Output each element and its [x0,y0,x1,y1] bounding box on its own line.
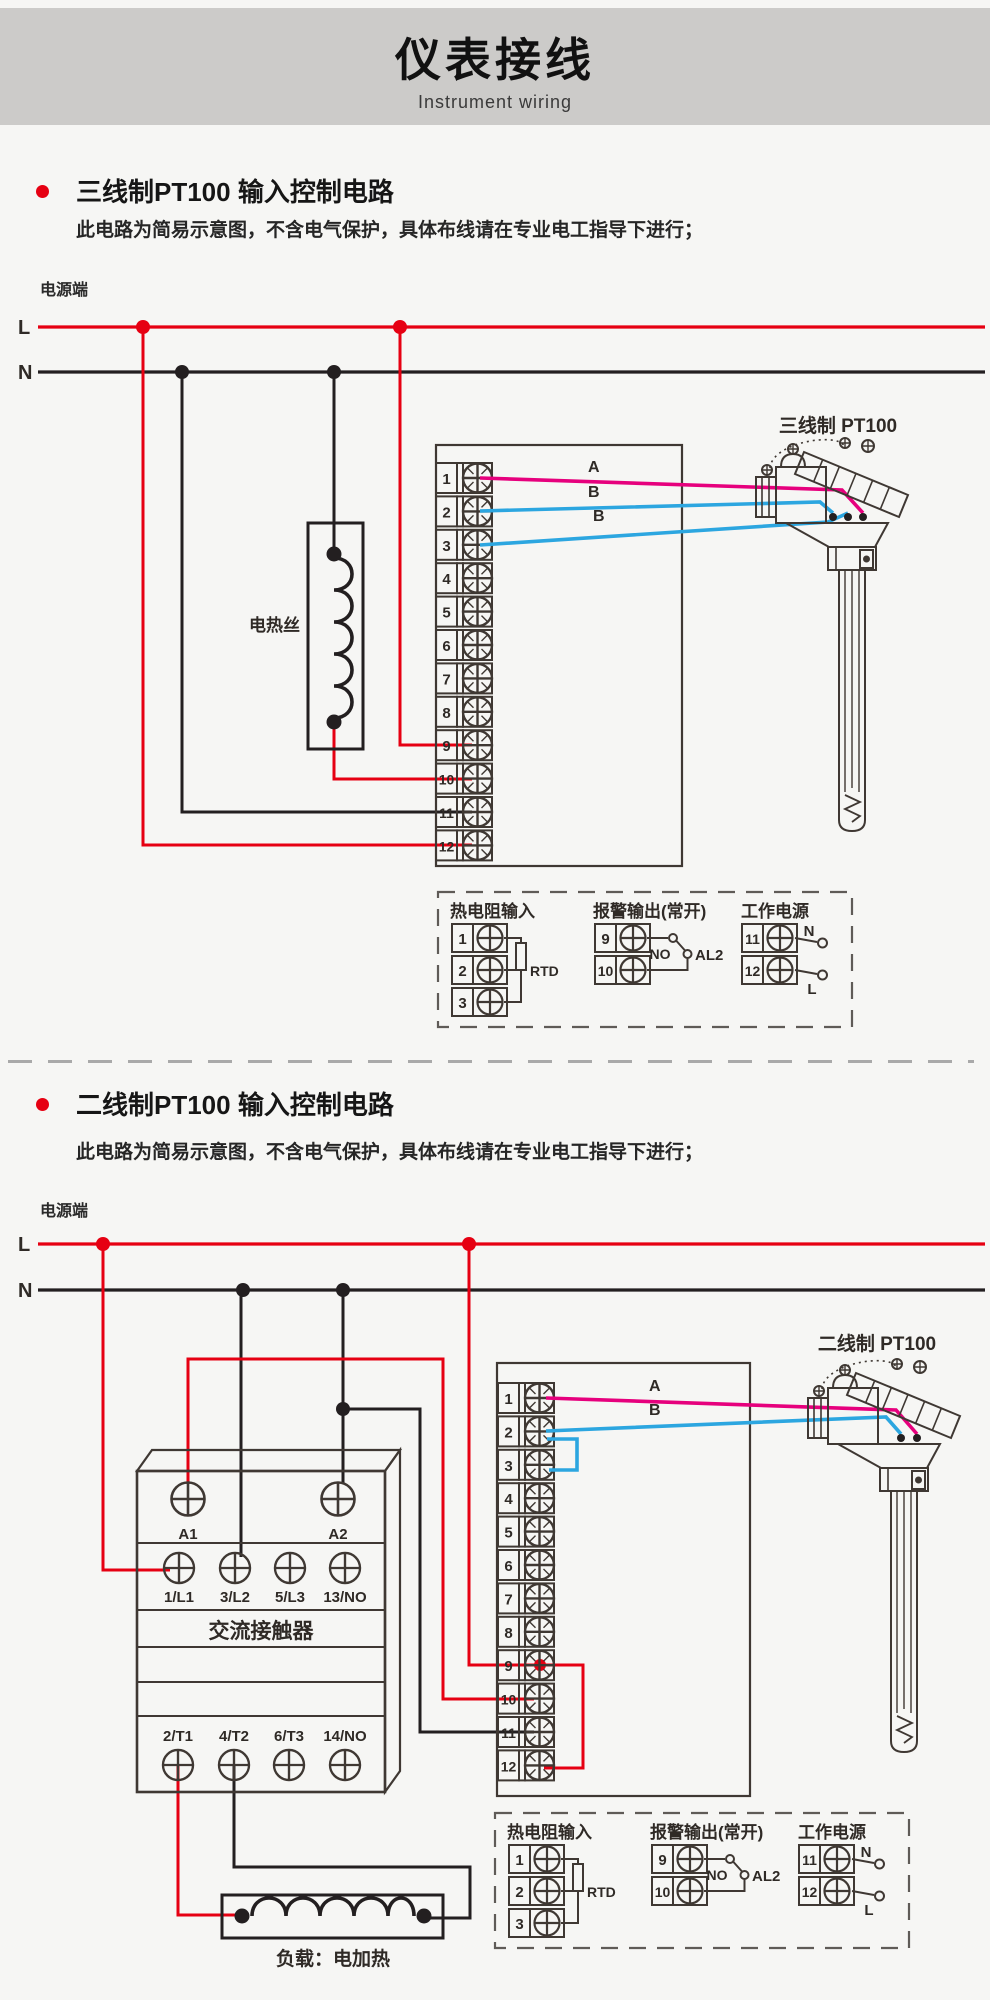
contactor-3l2: 3/L2 [220,1589,250,1606]
contactor-a2: A2 [328,1526,347,1543]
header: 仪表接线 Instrument wiring [0,8,990,125]
contactor-6t3: 6/T3 [274,1728,304,1745]
rail-l-label: L [18,1234,30,1256]
page-subtitle: Instrument wiring [0,92,990,113]
sensor-label: 三线制 PT100 [779,414,897,437]
page-title: 仪表接线 [0,8,990,90]
page: 仪表接线 Instrument wiring 三线制PT100 输入控制电路 此… [0,0,990,2000]
contactor-13no: 13/NO [323,1589,367,1606]
section2-power-label: 电源端 [40,1197,88,1221]
section1-bullet-icon [36,185,49,198]
contactor-name: 交流接触器 [209,1619,315,1643]
rails [38,320,985,379]
load-heater [222,1895,443,1938]
wire-b-label: B [593,508,605,525]
contactor-2t1: 2/T1 [163,1728,193,1745]
rail-l-label: L [18,317,30,339]
contactor-1l1: 1/L1 [164,1589,194,1606]
sensor-label: 二线制 PT100 [818,1332,936,1355]
sensor-terminal-dots [829,513,867,521]
wire-a-label: A [588,459,600,476]
contactor-4t2: 4/T2 [219,1728,249,1745]
section2-circuit: L N [0,1220,990,2000]
section2-bullet-icon [36,1098,49,1111]
contactor-14no: 14/NO [323,1728,367,1745]
wire-a-label: A [649,1378,661,1395]
section1-heading: 三线制PT100 输入控制电路 [76,172,394,209]
section-divider [8,1060,974,1063]
contactor-a1: A1 [178,1526,197,1543]
rails [38,1237,985,1297]
section1-note: 此电路为简易示意图，不含电气保护，具体布线请在专业电工指导下进行； [76,215,703,242]
section1-power-label: 电源端 [40,276,88,300]
rail-n-label: N [18,362,32,384]
load-label: 负载：电加热 [276,1947,390,1970]
rail-n-label: N [18,1280,32,1302]
heater-element [308,523,363,749]
wire-b-label: B [649,1402,661,1419]
contactor-5l3: 5/L3 [275,1589,305,1606]
section2-note: 此电路为简易示意图，不含电气保护，具体布线请在专业电工指导下进行； [76,1137,703,1164]
wire-b-label: B [588,484,600,501]
sensor-wires [546,1398,917,1470]
contactor: A1 A2 1/L1 3/L2 5/L3 13/NO 交流接触器 2/T1 4/… [137,1450,400,1792]
heater-label: 电热丝 [249,615,300,635]
section1-circuit: L N 电热丝 A [0,300,990,1045]
sensor-terminal-dots [897,1434,921,1442]
section2-heading: 二线制PT100 输入控制电路 [76,1085,394,1122]
